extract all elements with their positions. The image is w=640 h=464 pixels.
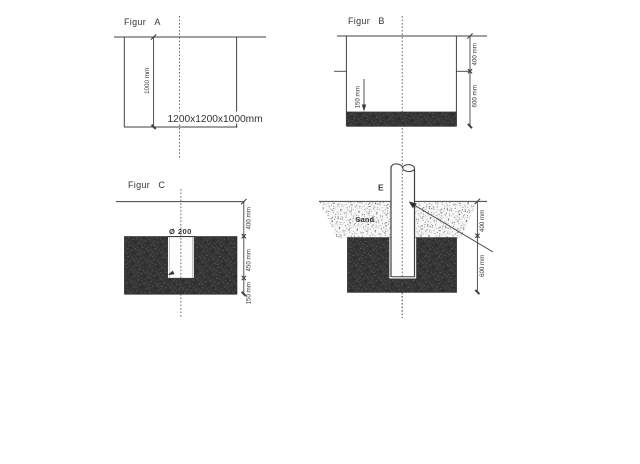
- svg-text:600 mm: 600 mm: [479, 255, 486, 277]
- svg-text:600 mm: 600 mm: [472, 85, 479, 107]
- svg-text:150 mm: 150 mm: [245, 282, 252, 304]
- svg-text:400 mm: 400 mm: [479, 210, 486, 232]
- svg-text:400 mm: 400 mm: [245, 207, 252, 229]
- svg-text:Figur A: Figur A: [124, 17, 161, 27]
- svg-text:400 mm: 400 mm: [472, 43, 479, 65]
- svg-text:1200x1200x1000mm: 1200x1200x1000mm: [168, 114, 263, 125]
- svg-text:Ø 200: Ø 200: [169, 227, 192, 236]
- svg-text:E: E: [378, 183, 384, 193]
- svg-text:1000 mm: 1000 mm: [144, 68, 151, 94]
- svg-text:150 mm: 150 mm: [355, 86, 362, 108]
- svg-text:Figur B: Figur B: [348, 16, 385, 26]
- svg-text:450 mm: 450 mm: [245, 249, 252, 271]
- svg-text:Figur C: Figur C: [128, 180, 165, 190]
- svg-text:Sand: Sand: [356, 215, 375, 224]
